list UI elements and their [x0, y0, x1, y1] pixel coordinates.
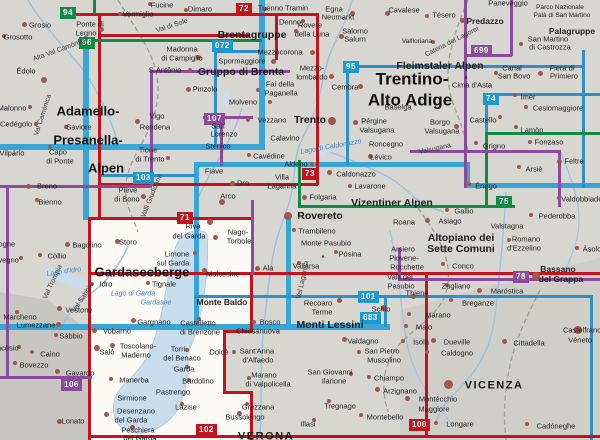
place-label: Zugliano — [442, 282, 471, 290]
place-label: lombardo — [296, 73, 327, 81]
place-label: Bardolino — [182, 377, 214, 385]
place-label: Salurn — [344, 35, 366, 43]
place-label: Riva — [185, 222, 200, 230]
sheet-badge-78[interactable]: 78 — [513, 271, 529, 283]
place-label: Monte Baldo — [197, 298, 248, 307]
town-dot — [375, 387, 380, 392]
place-label: di Bono — [114, 195, 139, 203]
town-dot — [441, 262, 445, 266]
town-dot — [405, 396, 410, 401]
place-label: Vermiglio — [123, 10, 154, 18]
place-label: Valli del — [387, 273, 413, 281]
sheet-frame-line — [316, 13, 319, 185]
town-dot — [54, 333, 58, 337]
sheet-frame-line — [88, 272, 91, 440]
place-label: Bienno — [38, 198, 61, 206]
sheet-badge-73[interactable]: 73 — [302, 168, 318, 180]
place-label: Toscolano- — [120, 342, 156, 350]
place-label: Véneto — [568, 336, 592, 344]
town-dot — [246, 118, 250, 122]
place-label: Lavarone — [354, 182, 385, 190]
place-label: San Pietro — [364, 347, 399, 355]
place-label: Montécchio — [419, 395, 457, 403]
place-label: Montebello — [367, 413, 404, 421]
town-dot — [328, 117, 336, 125]
place-label: Vobarno — [103, 327, 131, 335]
town-dot — [514, 125, 518, 129]
place-label: Alpen — [88, 162, 124, 175]
place-label: Lumezzane — [17, 321, 56, 329]
place-label: Mussolino — [367, 356, 401, 364]
place-label: Parco Nazionale — [536, 5, 584, 12]
place-label: Cesiomaggiore — [533, 104, 583, 112]
sheet-frame-line — [251, 200, 254, 275]
place-label: Énego — [475, 182, 497, 190]
town-dot — [467, 182, 471, 186]
town-dot — [28, 105, 32, 109]
place-label: Alta Val Camónica — [32, 37, 88, 63]
town-dot — [425, 350, 429, 354]
place-label: Gallio — [454, 207, 473, 215]
place-label: Feltre — [564, 157, 583, 165]
place-label: Limone — [165, 250, 190, 258]
sheet-badge-74[interactable]: 74 — [483, 93, 499, 105]
place-label: Bagolino — [72, 241, 101, 249]
place-label: Neumarkt — [322, 13, 355, 21]
place-label: Val di Sole — [155, 18, 189, 35]
town-dot — [502, 339, 507, 344]
place-label: Còllio — [48, 252, 67, 260]
place-label: Castelletto — [180, 319, 215, 327]
place-label: Cima d'Asta — [452, 81, 492, 89]
town-dot — [284, 212, 292, 220]
place-label: Monte Pasubio — [301, 239, 351, 247]
town-dot — [65, 242, 70, 247]
place-label: Fonzaso — [535, 138, 564, 146]
place-label: Torbole — [227, 237, 252, 245]
map-line-shape — [505, 290, 541, 440]
place-label: Idro — [100, 280, 113, 288]
sheet-frame-line — [194, 162, 470, 167]
place-label: Saviore — [66, 123, 91, 131]
place-label: Adamello- — [57, 105, 120, 118]
town-dot — [348, 184, 352, 188]
sheet-badge-95[interactable]: 95 — [343, 61, 359, 73]
place-label: Valsugana — [425, 127, 460, 135]
town-dot — [56, 322, 61, 327]
place-label: Maderno — [121, 351, 151, 359]
sheet-badge-103[interactable]: 103 — [133, 172, 154, 184]
place-label: del Garda — [124, 434, 157, 440]
place-label: Grezzana — [242, 403, 275, 411]
place-label: Lorenzo — [210, 130, 237, 138]
town-dot — [166, 156, 170, 160]
place-label: Grosotto — [4, 33, 33, 41]
sheet-badge-100[interactable]: 100 — [409, 419, 430, 431]
sheet-badge-72[interactable]: 72 — [236, 3, 252, 15]
town-dot — [268, 100, 272, 104]
place-label: Trambileno — [298, 227, 335, 235]
town-dot — [342, 337, 347, 342]
place-label: della Luna — [295, 30, 330, 38]
town-dot — [292, 228, 296, 232]
place-label: Vizentiner Alpen — [351, 198, 433, 209]
place-label: Palà di San Martino — [534, 13, 591, 20]
town-dot — [302, 195, 307, 200]
place-label: Predazzo — [466, 17, 503, 26]
town-dot — [19, 256, 23, 260]
place-label: Édolo — [16, 67, 35, 75]
town-dot — [232, 350, 236, 354]
place-label: Gardaseeberge — [95, 266, 190, 279]
town-dot — [425, 14, 429, 18]
place-label: Ilarione — [322, 377, 347, 385]
place-label: Isola — [413, 338, 429, 346]
place-label: Paneveggio — [488, 0, 528, 7]
place-label: Dro — [237, 179, 249, 187]
place-label: Ponte di — [76, 20, 104, 28]
place-label: del Benaco — [163, 354, 201, 362]
place-label: Fleimstaler Alpen — [396, 61, 483, 72]
town-dot — [407, 312, 411, 316]
place-label: Terme — [312, 308, 333, 316]
map-overview: 9496720729569974107103737175101683781061… — [0, 0, 600, 440]
place-label: Rovereto — [297, 211, 343, 222]
place-label: Valdagno — [347, 337, 378, 345]
town-dot — [118, 12, 122, 16]
place-label: Vezzano — [258, 116, 287, 124]
place-label: Garda — [174, 365, 195, 373]
place-label: Brentagruppe — [218, 30, 287, 41]
town-dot — [109, 377, 113, 381]
town-dot — [425, 218, 430, 223]
town-dot — [513, 93, 517, 97]
place-label: Sette Comuni — [427, 244, 495, 255]
place-label: Bovezzo — [20, 361, 49, 369]
place-label: Asiago — [439, 217, 462, 225]
town-dot — [13, 361, 17, 365]
place-label: Rocchette — [390, 263, 424, 271]
place-label: Pastrengo — [156, 388, 190, 396]
town-dot — [353, 120, 358, 125]
town-dot — [104, 412, 109, 417]
place-label: Chiampo — [374, 374, 404, 382]
place-label: Breno — [37, 182, 57, 190]
place-label: Romano — [512, 235, 540, 243]
place-label: Valstagna — [491, 222, 524, 230]
town-dot — [57, 306, 62, 311]
place-label: d'Alfaedo — [242, 356, 273, 364]
sheet-frame-line — [590, 295, 593, 440]
town-dot — [538, 71, 543, 76]
town-dot — [401, 339, 405, 343]
place-label: Baselga — [384, 103, 411, 111]
town-dot — [41, 77, 47, 83]
place-label: Nago- — [228, 228, 248, 236]
place-label: Aldeno — [284, 160, 307, 168]
town-dot — [30, 350, 34, 354]
place-label: Manerba — [119, 376, 149, 384]
town-dot — [310, 162, 314, 166]
place-label: Calavino — [270, 134, 299, 142]
sheet-frame-line — [485, 93, 600, 96]
place-label: San Giovanni — [307, 368, 352, 376]
place-label: Lamòn — [521, 126, 544, 134]
place-label: Lazise — [175, 403, 197, 411]
place-label: Monti Lessini — [296, 320, 363, 331]
place-label: Bassano — [540, 265, 575, 274]
town-dot — [186, 87, 191, 92]
place-label: Arzignano — [383, 387, 417, 395]
town-dot — [26, 184, 31, 189]
place-label: Illasi — [300, 420, 315, 428]
place-label: Cavalese — [388, 6, 419, 14]
town-dot — [55, 369, 60, 374]
place-label: Rendena — [140, 123, 170, 131]
town-dot — [367, 375, 371, 379]
place-label: Paganella — [264, 89, 297, 97]
place-label: Lonato — [62, 417, 85, 425]
place-label: Cavédine — [253, 152, 285, 160]
place-label: Valfloriana — [402, 39, 432, 46]
town-dot — [213, 235, 218, 240]
place-label: Sàbbio — [59, 332, 82, 340]
town-dot — [334, 250, 338, 254]
place-label: Presanella- — [53, 134, 122, 147]
place-label: Schio — [372, 305, 391, 313]
place-label: di Campiglio — [161, 54, 202, 62]
town-dot — [193, 251, 197, 255]
place-label: del Garda — [115, 416, 148, 424]
place-label: Arsiè — [525, 165, 542, 173]
place-label: Villa — [275, 173, 289, 181]
town-dot — [359, 413, 363, 417]
place-label: Pinzolo — [193, 85, 218, 93]
place-label: Primiero — [550, 72, 578, 80]
sheet-badge-102[interactable]: 102 — [196, 424, 217, 436]
place-label: Concésio — [0, 344, 19, 352]
place-label: di Ponte — [46, 157, 74, 165]
town-dot — [22, 22, 27, 27]
water-label: Lago di Caldonazzo — [300, 138, 362, 156]
sheet-frame-line — [93, 0, 96, 14]
place-label: Gruppo di Brenta — [198, 67, 284, 78]
place-label: Caldogno — [441, 349, 473, 357]
place-label: Grosio — [29, 21, 51, 29]
sheet-frame-line — [88, 435, 600, 438]
place-label: Maróstica — [491, 287, 524, 295]
place-label: di Trento — [135, 155, 164, 163]
place-label: Torri — [171, 345, 186, 353]
place-label: Dueville — [444, 338, 471, 346]
town-dot — [255, 266, 260, 271]
town-dot — [525, 422, 529, 426]
place-label: Mezzo- — [300, 64, 325, 72]
sheet-frame-line — [464, 0, 467, 188]
place-label: Maggiore — [418, 405, 449, 413]
town-dot — [337, 298, 342, 303]
place-label: Pósina — [339, 250, 362, 258]
place-label: Pederobba — [539, 212, 576, 220]
place-label: Mezzocorona — [257, 48, 302, 56]
town-dot — [529, 213, 533, 217]
place-label: VERONA — [238, 432, 294, 440]
town-dot — [498, 115, 502, 119]
town-dot — [557, 159, 562, 164]
place-label: Vigo — [150, 112, 165, 120]
sheet-frame-line — [346, 65, 349, 165]
place-label: Gargnano — [137, 318, 170, 326]
place-label: Vilpário — [0, 149, 24, 157]
sheet-frame-line — [88, 217, 253, 220]
town-dot — [449, 298, 453, 302]
place-label: di Valpolicella — [245, 380, 290, 388]
place-label: Arsiero — [391, 245, 415, 253]
place-label: Roncegno — [369, 140, 403, 148]
place-label: Roana — [393, 218, 415, 226]
town-dot — [434, 421, 438, 425]
place-label: Marano — [251, 371, 276, 379]
sheet-frame-line — [582, 50, 585, 188]
place-label: Fiave — [205, 167, 223, 175]
place-label: Salò — [99, 348, 114, 356]
place-label: Capo — [49, 148, 67, 156]
town-dot — [256, 88, 260, 92]
place-label: VICENZA — [465, 381, 524, 392]
place-label: Altopiano dei — [428, 233, 495, 244]
place-label: Fucine — [151, 1, 174, 9]
place-label: Castelfranco — [563, 326, 600, 334]
place-label: Stenico — [205, 142, 230, 150]
place-label: Valsugana — [418, 142, 451, 156]
place-label: del Grappa — [539, 275, 583, 284]
town-dot — [230, 181, 235, 186]
place-label: Pérgine — [361, 117, 387, 125]
place-label: Dolcè — [209, 348, 228, 356]
place-label: Gavardo — [66, 369, 95, 377]
place-label: Tione — [139, 146, 157, 154]
place-label: Storo — [119, 238, 137, 246]
sheet-badge-699[interactable]: 699 — [471, 45, 492, 57]
place-label: Artogne — [0, 240, 15, 248]
place-label: Lévico — [370, 153, 392, 161]
place-label: Rovere — [298, 21, 322, 29]
place-label: Cembra — [332, 83, 359, 91]
town-dot — [135, 119, 140, 124]
town-dot — [460, 18, 465, 23]
town-dot — [271, 59, 276, 64]
place-label: Valsugana — [360, 126, 395, 134]
place-label: Ala — [263, 264, 274, 272]
place-label: Val Camónica — [33, 93, 53, 136]
sheet-frame-line — [223, 391, 252, 394]
place-label: Folgaria — [309, 193, 336, 201]
place-label: Grigno — [483, 142, 506, 150]
place-label: Bussolengo — [225, 413, 264, 421]
sheet-frame-line — [194, 295, 592, 298]
place-label: Arco — [220, 192, 235, 200]
water-label: Lago di Garda — [111, 291, 155, 298]
place-label: Lagarina — [267, 182, 296, 190]
town-dot — [444, 380, 453, 389]
place-label: Tuenno Tramin — [258, 4, 308, 12]
place-label: Cedégolo — [0, 120, 32, 128]
place-label: Sant'Anna — [240, 347, 274, 355]
place-label: Thiene — [406, 289, 429, 297]
place-label: Malcesine — [206, 270, 240, 278]
sheet-badge-94[interactable]: 94 — [60, 7, 76, 19]
town-dot — [575, 246, 579, 250]
place-label: Malonno — [0, 104, 26, 112]
sheet-badge-101[interactable]: 101 — [358, 291, 379, 303]
place-label: Recoaro — [304, 299, 332, 307]
sheet-badge-072[interactable]: 072 — [212, 40, 233, 52]
place-label: S.Antônio — [149, 66, 182, 74]
peak-icon: ▲ — [321, 255, 326, 260]
town-dot — [146, 281, 150, 285]
place-label: Tésero — [432, 11, 455, 19]
place-label: Borgo — [430, 118, 450, 126]
water-label: Gardasee — [141, 300, 172, 307]
town-dot — [528, 140, 532, 144]
town-dot — [92, 328, 97, 333]
place-label: Pieve — [119, 186, 138, 194]
town-dot — [310, 50, 315, 55]
sheet-badge-75[interactable]: 75 — [496, 196, 512, 208]
sheet-frame-line — [510, 0, 513, 56]
place-label: Chiesanuova — [236, 327, 280, 335]
town-dot — [329, 74, 334, 79]
town-dot — [524, 105, 528, 109]
place-label: Piovene- — [389, 254, 419, 262]
town-dot — [247, 153, 251, 157]
water-label: Lago d'Idro — [46, 266, 81, 278]
place-label: Breganze — [462, 299, 494, 307]
place-label: Caldonazzo — [336, 170, 376, 178]
town-dot — [431, 338, 436, 343]
place-label: Imèr — [521, 93, 536, 101]
place-label: Longare — [446, 420, 474, 428]
town-dot — [131, 318, 136, 323]
place-label: d'Ezzelino — [507, 244, 541, 252]
town-dot — [507, 238, 511, 242]
place-label: Bosco — [260, 318, 281, 326]
place-label: Cadóneghe — [537, 422, 576, 430]
town-dot — [477, 288, 482, 293]
sheet-frame-line — [223, 330, 226, 393]
place-label: Marano — [425, 311, 450, 319]
town-dot — [188, 68, 192, 72]
place-label: Àsolo — [583, 245, 600, 253]
place-label: San Bovo — [498, 72, 531, 80]
place-label: Legno — [76, 29, 97, 37]
place-label: Dimaro — [188, 5, 212, 13]
town-dot — [474, 141, 478, 145]
place-label: Tregnago — [324, 402, 356, 410]
place-label: Castello — [469, 116, 496, 124]
town-dot — [404, 324, 408, 328]
place-label: Bovegno — [0, 256, 19, 264]
town-dot — [517, 165, 521, 169]
town-dot — [38, 253, 42, 257]
place-label: Malo — [416, 323, 432, 331]
place-label: Molveno — [229, 98, 257, 106]
sheet-badge-106[interactable]: 106 — [61, 379, 82, 391]
town-dot — [141, 194, 146, 199]
place-label: del Garda — [173, 232, 206, 240]
place-label: di Brenzone — [180, 328, 220, 336]
town-dot — [445, 208, 449, 212]
